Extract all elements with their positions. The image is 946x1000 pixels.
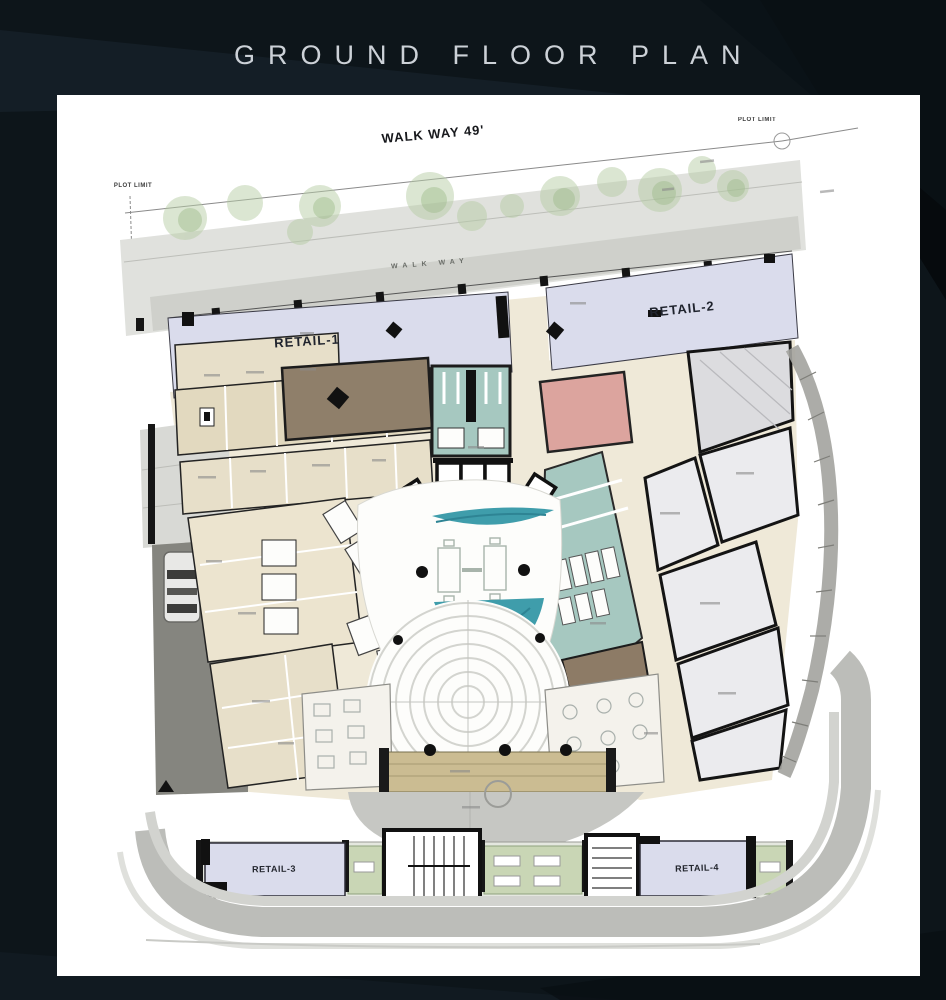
pink-room — [540, 372, 632, 452]
stair-1 — [384, 830, 480, 902]
entrance-vestibule — [379, 744, 616, 794]
floor-plan-card — [57, 95, 920, 976]
retail-3-label: RETAIL-3 — [252, 864, 296, 875]
seating-left — [302, 684, 392, 790]
stair-2 — [586, 835, 638, 901]
retail-4-label: RETAIL-4 — [675, 862, 719, 874]
plot-limit-label-left: PLOT LIMIT — [114, 183, 152, 189]
slide: GROUND FLOOR PLAN — [0, 0, 946, 1000]
page-title: GROUND FLOOR PLAN — [234, 40, 754, 71]
floor-plan-drawing — [57, 95, 920, 976]
toilet-block-top — [432, 366, 510, 456]
plot-limit-label-right: PLOT LIMIT — [738, 117, 776, 123]
